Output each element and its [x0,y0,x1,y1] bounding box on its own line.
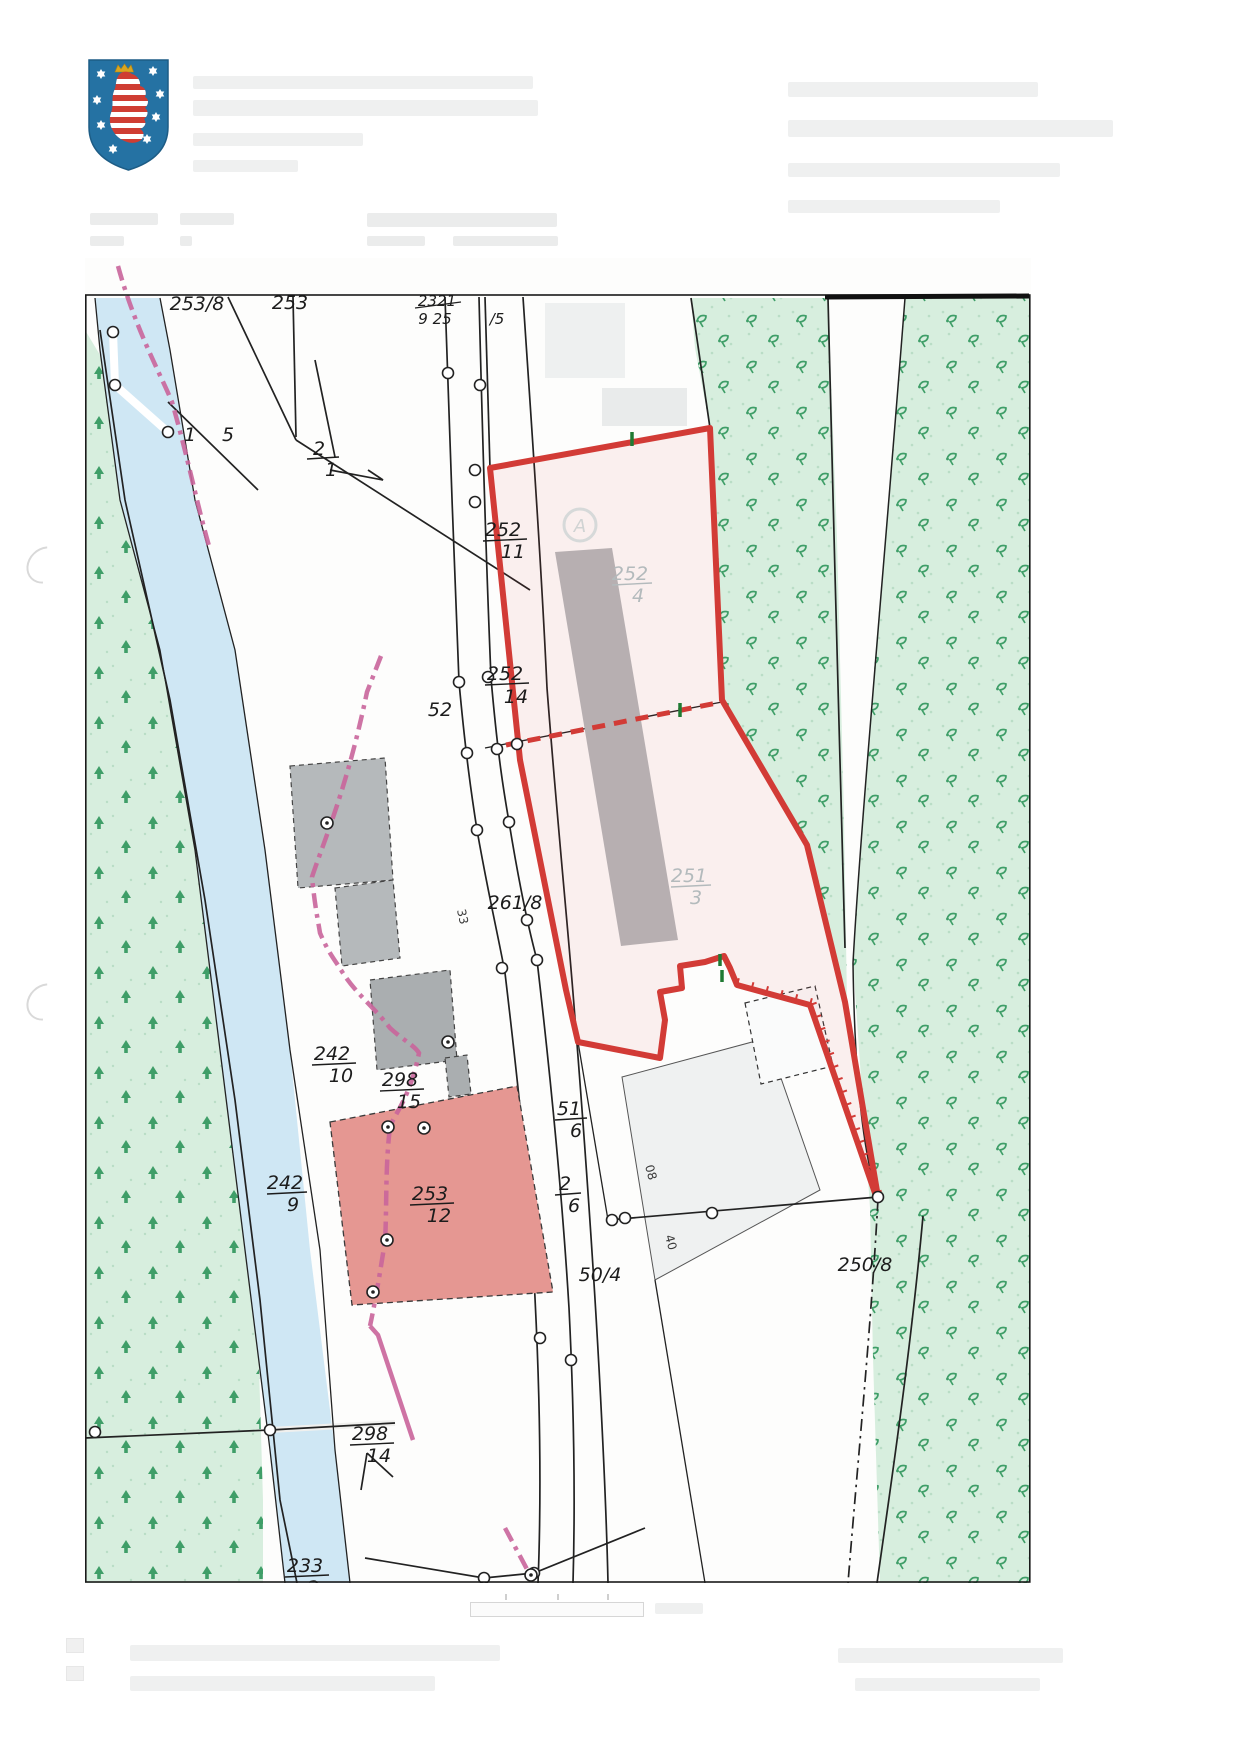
parcel-label: 1 [184,424,196,446]
boundary-point [472,825,483,836]
parcel-label: 50/4 [579,1264,622,1286]
svg-text:251: 251 [671,865,707,887]
boundary-point-with-dot [382,1121,394,1133]
svg-text:14: 14 [504,686,528,708]
boundary-point [462,748,473,759]
legend-symbol-box [66,1666,84,1681]
boundary-point [163,427,174,438]
boundary-point [707,1208,718,1219]
parcel-label: 250/8 [838,1254,893,1276]
boundary-point [607,1215,618,1226]
boundary-point [504,817,515,828]
svg-text:2: 2 [313,438,325,460]
boundary-point [470,497,481,508]
scale-tick [607,1594,609,1600]
svg-text:6: 6 [570,1120,582,1142]
legend-symbol-box [66,1638,84,1653]
boundary-point [475,380,486,391]
boundary-point-with-dot [367,1286,379,1298]
meta-field-redacted [453,236,558,246]
subtitle-line-redacted [788,120,1113,137]
boundary-point [620,1213,631,1224]
thuringia-coat-of-arms-icon [85,57,172,173]
cadastral-map: A 253/8 253 2321 9 25 /5 1 5 2 1 252 11 … [85,258,1031,1583]
scanned-page: A 253/8 253 2321 9 25 /5 1 5 2 1 252 11 … [0,0,1240,1754]
meta-field-redacted [180,213,234,225]
legend-value-redacted [838,1648,1063,1663]
punch-hole-mark [19,976,71,1028]
parcel-label: 52 [428,699,452,721]
scale-tick [505,1594,507,1600]
svg-text:233: 233 [287,1555,323,1577]
svg-text:242: 242 [267,1172,303,1194]
svg-text:6: 6 [568,1195,580,1217]
boundary-point [454,677,465,688]
boundary-point [470,465,481,476]
svg-text:3: 3 [690,887,702,909]
parcel-label: 5 [222,424,234,446]
meta-field-redacted [367,236,425,246]
boundary-point [110,380,121,391]
faint-building-outline [545,303,625,378]
boundary-point [532,955,543,966]
svg-text:12: 12 [427,1205,451,1227]
boundary-point [90,1427,101,1438]
legend-value-redacted [855,1678,1040,1691]
meta-field-redacted [90,213,158,225]
svg-text:252: 252 [487,663,523,685]
header-office-line-redacted [193,100,538,116]
boundary-point-with-dot [321,817,333,829]
meta-field-redacted [367,213,557,227]
svg-text:252: 252 [612,563,648,585]
svg-text:1: 1 [325,459,337,481]
parcel-label: 261/8 [488,892,543,914]
boundary-point [492,744,503,755]
boundary-point-with-dot [418,1122,430,1134]
boundary-point [265,1425,276,1436]
boundary-point [443,368,454,379]
title-line-redacted [788,82,1038,97]
svg-text:A: A [573,516,586,537]
scale-text-redacted [655,1603,703,1614]
date-line-redacted [788,200,1000,213]
svg-text:242: 242 [314,1043,350,1065]
district-line-redacted [788,163,1060,177]
header-issuer-line-redacted [193,76,533,89]
boundary-point-with-dot [442,1036,454,1048]
svg-text:298: 298 [352,1423,388,1445]
boundary-point [108,327,119,338]
svg-text:51: 51 [557,1098,581,1120]
header-address-line-redacted [193,133,363,146]
header-city-line-redacted [193,160,298,172]
svg-text:2: 2 [559,1173,571,1195]
crown-icon [115,64,134,72]
legend-line-redacted [130,1645,500,1661]
boundary-point [873,1192,884,1203]
parcel-label: 253/8 [170,293,225,315]
boundary-point-with-dot [381,1234,393,1246]
punch-hole-mark [19,539,71,591]
boundary-point [566,1355,577,1366]
boundary-point [512,739,523,750]
svg-text:253: 253 [412,1183,448,1205]
boundary-point-with-dot [525,1569,537,1581]
svg-text:10: 10 [329,1065,353,1087]
boundary-point [535,1333,546,1344]
svg-text:4: 4 [632,585,644,607]
svg-text:15: 15 [397,1091,421,1113]
legend-line-redacted [130,1676,435,1691]
svg-text:9: 9 [287,1194,299,1216]
scale-bar [470,1602,644,1617]
meta-field-redacted [90,236,124,246]
parcel-label: 9 25 [418,310,451,328]
boundary-point [497,963,508,974]
boundary-point [522,915,533,926]
map-frame-thick-segment [825,296,1029,297]
svg-text:14: 14 [367,1445,391,1467]
faint-building-outline [602,388,687,426]
svg-text:11: 11 [501,541,525,563]
parcel-label: /5 [488,310,505,328]
svg-text:252: 252 [485,519,521,541]
meta-field-redacted [180,236,192,246]
svg-text:298: 298 [382,1069,418,1091]
scale-tick [557,1594,559,1600]
